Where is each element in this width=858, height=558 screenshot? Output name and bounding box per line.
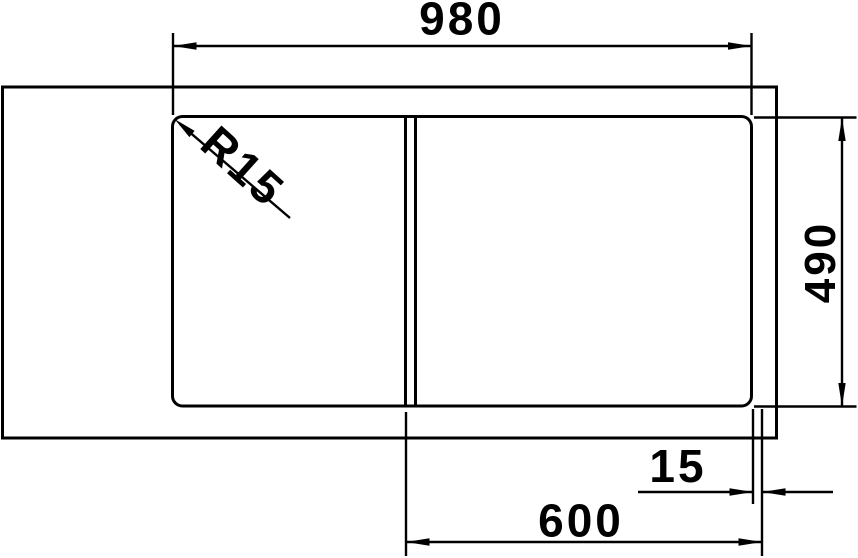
arrow-left-icon — [762, 488, 786, 495]
arrow-down-icon — [838, 383, 845, 407]
technical-drawing-canvas: 980 490 R15 600 — [0, 0, 858, 558]
dimension-label-overall-width: 980 — [419, 0, 505, 45]
dimension-bowl-edge-offset: 15 — [638, 409, 833, 556]
arrow-right-icon — [739, 538, 763, 545]
dimension-corner-radius: R15 — [175, 116, 296, 218]
arrow-corner-icon — [175, 119, 195, 137]
arrow-right-icon — [728, 42, 752, 49]
dimension-bowl-width: 600 — [406, 412, 762, 556]
arrow-up-icon — [838, 118, 845, 142]
outlines — [3, 87, 777, 438]
arrow-right-icon — [730, 488, 754, 495]
dimension-label-overall-depth: 490 — [796, 221, 845, 303]
dimension-label-bowl-edge-offset: 15 — [649, 440, 706, 492]
dimension-overall-width: 980 — [173, 0, 752, 115]
dimension-label-corner-radius: R15 — [191, 116, 295, 217]
arrow-left-icon — [173, 42, 197, 49]
dimension-label-bowl-width: 600 — [538, 495, 624, 547]
countertop-outline — [3, 87, 777, 438]
arrow-left-icon — [406, 538, 430, 545]
dimension-overall-depth: 490 — [754, 118, 857, 407]
sink-dimension-drawing: 980 490 R15 600 — [0, 0, 858, 558]
